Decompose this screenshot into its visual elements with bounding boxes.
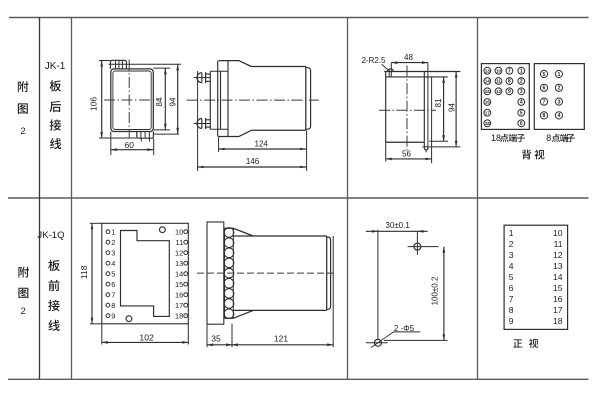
svg-text:7: 7 [509,294,514,304]
svg-text:146: 146 [246,157,260,166]
svg-text:10: 10 [496,68,502,73]
svg-text:5: 5 [520,110,523,116]
svg-text:1: 1 [520,68,523,74]
svg-text:8: 8 [546,133,551,143]
svg-text:48: 48 [404,53,413,62]
svg-text:11: 11 [496,79,501,84]
svg-text:17: 17 [485,110,491,115]
svg-text:9: 9 [509,316,514,326]
svg-text:7: 7 [111,290,115,299]
svg-text:81: 81 [434,98,443,107]
svg-text:4: 4 [557,113,560,119]
svg-text:8: 8 [543,113,546,119]
svg-text:6: 6 [520,121,523,127]
svg-text:16: 16 [553,294,563,304]
svg-text:18: 18 [485,121,491,126]
svg-text:2: 2 [509,239,514,249]
svg-text:2-R2.5: 2-R2.5 [361,56,386,65]
svg-text:3: 3 [509,250,514,260]
svg-text:4: 4 [111,259,115,268]
svg-text:9: 9 [508,89,511,95]
svg-text:121: 121 [274,333,288,343]
svg-text:30±0.1: 30±0.1 [385,221,410,230]
svg-text:10: 10 [553,228,563,238]
svg-text:18: 18 [175,311,183,320]
svg-text:2: 2 [557,86,560,92]
svg-text:7: 7 [508,68,511,74]
svg-text:14: 14 [175,269,183,278]
svg-text:6: 6 [111,280,115,289]
svg-text:JK-1: JK-1 [45,61,66,72]
svg-text:1: 1 [557,72,560,78]
svg-text:6: 6 [543,86,546,92]
svg-text:15: 15 [175,280,183,289]
svg-text:10: 10 [175,227,183,236]
svg-text:16: 16 [485,100,491,105]
svg-text:11: 11 [176,238,184,247]
svg-text:13: 13 [485,68,491,73]
svg-text:56: 56 [402,149,411,158]
svg-text:9: 9 [111,311,115,320]
svg-text:18: 18 [553,316,563,326]
svg-text:15: 15 [485,89,491,94]
svg-text:13: 13 [553,261,563,271]
svg-text:5: 5 [111,269,115,278]
svg-text:14: 14 [485,79,491,84]
svg-text:14: 14 [553,272,563,282]
svg-text:12: 12 [175,248,183,257]
svg-text:7: 7 [543,99,546,105]
svg-text:JK-1Q: JK-1Q [37,230,64,241]
svg-text:12: 12 [496,89,502,94]
svg-text:94: 94 [168,97,177,106]
svg-text:13: 13 [175,259,183,268]
svg-text:16: 16 [175,290,183,299]
svg-text:1: 1 [111,227,115,236]
svg-text:3: 3 [111,248,115,257]
svg-text:11: 11 [554,239,563,249]
svg-text:18: 18 [491,133,501,143]
svg-text:17: 17 [175,301,183,310]
svg-text:8: 8 [111,301,115,310]
svg-text:4: 4 [520,100,523,106]
svg-text:8: 8 [509,305,514,315]
svg-text:35: 35 [211,333,221,343]
svg-text:8: 8 [508,79,511,85]
svg-text:3: 3 [557,99,560,105]
svg-text:102: 102 [139,332,154,342]
svg-text:124: 124 [255,139,269,148]
svg-text:100±0.2: 100±0.2 [430,276,439,305]
svg-text:17: 17 [553,305,563,315]
svg-text:118: 118 [79,265,89,279]
svg-text:2: 2 [520,79,523,85]
svg-text:6: 6 [509,283,514,293]
svg-text:2: 2 [20,126,25,137]
svg-text:84: 84 [155,97,164,106]
svg-text:4: 4 [509,261,514,271]
svg-text:106: 106 [89,97,99,111]
svg-text:1: 1 [509,228,514,238]
svg-text:60: 60 [125,140,135,150]
svg-text:15: 15 [553,283,563,293]
svg-text:12: 12 [553,250,563,260]
svg-text:2: 2 [21,306,26,317]
svg-text:94: 94 [447,103,456,112]
svg-text:5: 5 [509,272,514,282]
svg-text:3: 3 [520,89,523,95]
svg-text:5: 5 [543,72,546,78]
svg-text:2: 2 [111,238,115,247]
